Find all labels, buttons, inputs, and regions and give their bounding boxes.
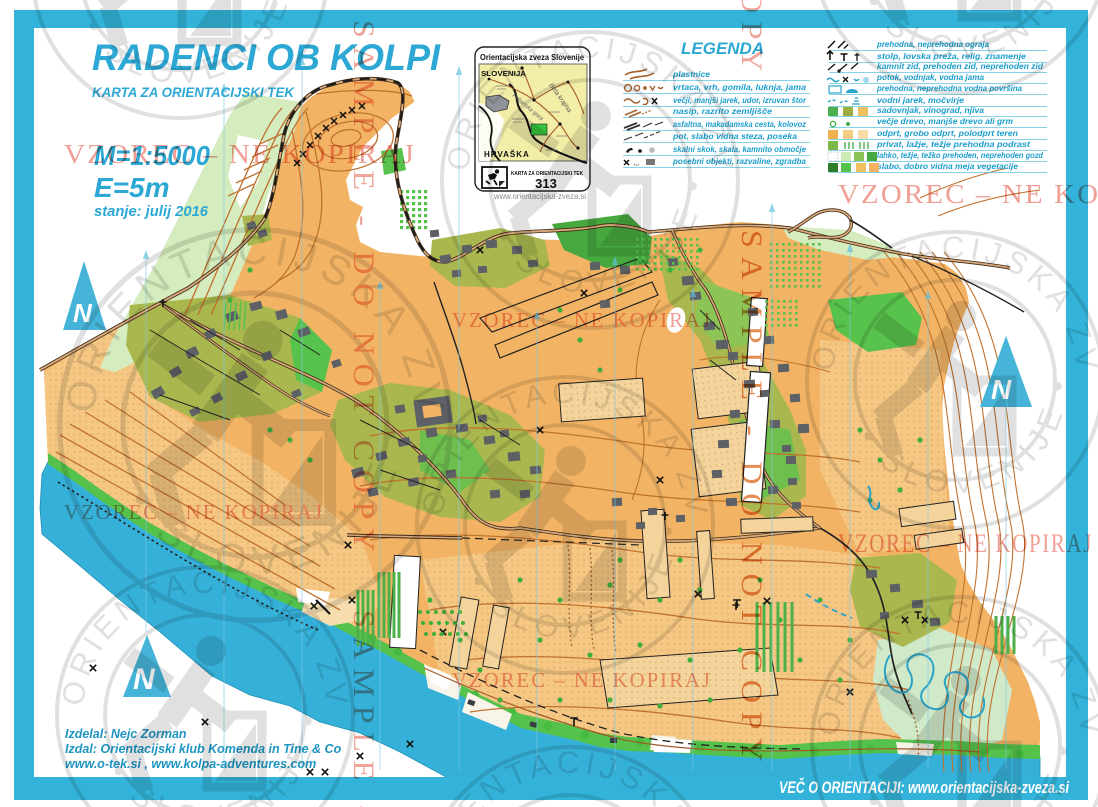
svg-text:skalni skok, skala, kamnito ob: skalni skok, skala, kamnito območje bbox=[673, 144, 806, 154]
svg-text:lahko, težje, težko prehoden,: lahko, težje, težko prehoden, neprehoden… bbox=[877, 150, 1044, 160]
svg-text:SAMPLE - DO NOT COPY: SAMPLE - DO NOT COPY bbox=[347, 20, 380, 560]
svg-text:VZOREC – NE KOPIRAJ: VZOREC – NE KOPIRAJ bbox=[838, 179, 1098, 209]
svg-text:stanje: julij 2016: stanje: julij 2016 bbox=[94, 204, 209, 220]
svg-text:večje drevo, manjše drevo ali: večje drevo, manjše drevo ali grm bbox=[877, 116, 1014, 126]
svg-text:VZOREC – NE KOPIRAJ: VZOREC – NE KOPIRAJ bbox=[64, 500, 324, 524]
svg-text:VZOREC – NE KOPIRAJ: VZOREC – NE KOPIRAJ bbox=[838, 529, 1093, 558]
svg-text:SAMPLE - DO NOT COPY: SAMPLE - DO NOT COPY bbox=[347, 610, 380, 807]
svg-text:slabo, dobro vidna meja vegeta: slabo, dobro vidna meja vegetacije bbox=[877, 161, 1018, 171]
svg-text:odprt, grobo odprt, polodprt t: odprt, grobo odprt, polodprt teren bbox=[877, 128, 1018, 138]
svg-text:sadovnjak, vinograd, njiva: sadovnjak, vinograd, njiva bbox=[877, 105, 984, 115]
svg-text:E=5m: E=5m bbox=[94, 172, 170, 203]
svg-text:privat, lažje, težje prehodna: privat, lažje, težje prehodna podrast bbox=[876, 139, 1031, 149]
svg-text:SAMPLE - DO NOT COPY: SAMPLE - DO NOT COPY bbox=[735, 230, 768, 770]
svg-text:vodni jarek, močvirje: vodni jarek, močvirje bbox=[877, 95, 964, 105]
svg-text:VZOREC – NE KOPIRAJ: VZOREC – NE KOPIRAJ bbox=[452, 668, 712, 692]
svg-text:VZOREC – NE KOPIRAJ: VZOREC – NE KOPIRAJ bbox=[452, 308, 712, 332]
svg-text:VEČ O ORIENTACIJI: www.orienta: VEČ O ORIENTACIJI: www.orientacijska-zve… bbox=[779, 778, 1070, 797]
svg-text:SAMPLE - DO NOT COPY: SAMPLE - DO NOT COPY bbox=[735, 0, 768, 80]
